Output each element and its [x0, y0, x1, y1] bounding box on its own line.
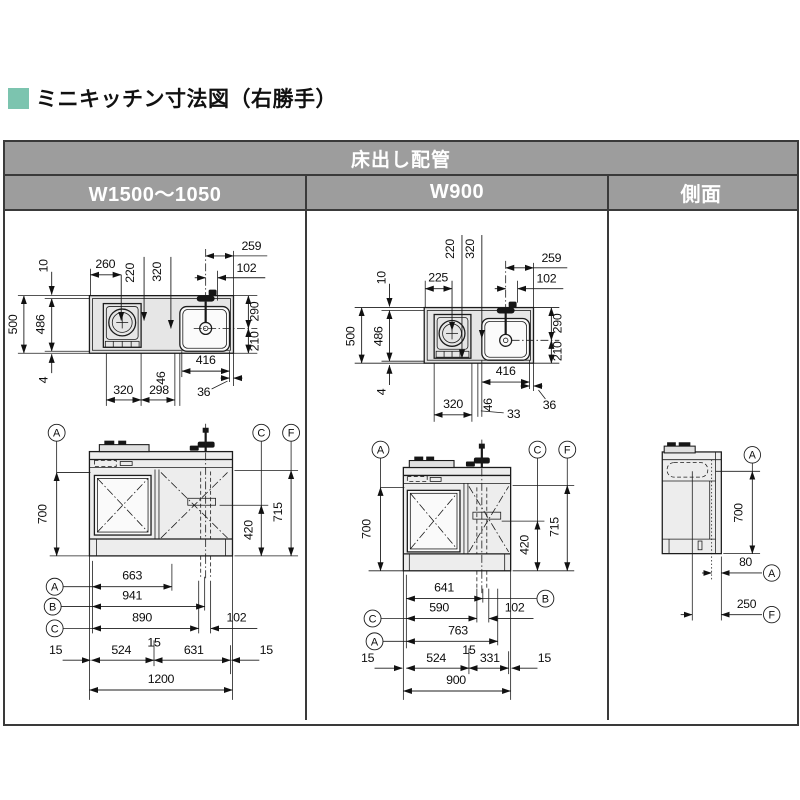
dim-label: 700 [732, 503, 746, 523]
dim-label: 715 [271, 502, 285, 522]
dim-label: 33 [507, 407, 521, 421]
dim-label: 36 [543, 398, 557, 412]
connection-letter: B [49, 602, 56, 614]
connection-letter: C [534, 445, 542, 457]
dim-label: 700 [360, 519, 374, 539]
dim-label: 102 [536, 272, 556, 286]
dim-label: 524 [111, 643, 131, 657]
dim-label: 15 [49, 643, 63, 657]
dim-label: 641 [434, 581, 454, 595]
dim-label: 420 [241, 520, 255, 540]
dim-label: 1200 [148, 672, 175, 686]
connection-letter: F [768, 610, 775, 622]
dim-label: 220 [443, 239, 457, 259]
dim-label: 320 [463, 239, 477, 259]
w900-faucet-icon [497, 308, 515, 314]
table-content-row: 259 102 260 220 320 [5, 211, 797, 720]
cell-w900: 259 102 225 220 320 [307, 211, 607, 720]
dim-label: 290 [247, 301, 261, 321]
dim-label: 36 [197, 385, 211, 399]
connection-letter: A [51, 582, 59, 594]
w1500-drawing: 259 102 260 220 320 [5, 211, 305, 720]
connection-letter: A [768, 568, 776, 580]
dim-label: 259 [241, 239, 261, 253]
dim-label: 250 [737, 597, 757, 611]
dim-label: 290 [550, 313, 564, 333]
dim-label: 4 [37, 376, 51, 383]
column-header-side: 側面 [609, 176, 793, 209]
w1500-plan-counter [89, 290, 233, 354]
connection-letter: C [257, 428, 265, 440]
w1500-elev-faucet-icon [198, 442, 215, 448]
dim-label: 524 [426, 651, 446, 665]
table-header-piping: 床出し配管 [5, 142, 797, 176]
w900-elevation-cabinet [403, 440, 510, 594]
dim-label: 220 [123, 262, 137, 282]
w900-drawing: 259 102 225 220 320 [307, 211, 607, 720]
dim-label: 15 [538, 651, 552, 665]
dim-label: 590 [429, 601, 449, 615]
dim-label: 15 [260, 643, 274, 657]
dim-label: 80 [739, 555, 752, 569]
dim-label: 320 [150, 261, 164, 281]
dim-label: 102 [505, 601, 525, 615]
side-view-cabinet [662, 442, 721, 620]
dim-label: 486 [34, 314, 48, 334]
dim-label: 416 [496, 364, 516, 378]
dim-label: 259 [541, 251, 561, 265]
dim-label: 416 [196, 353, 216, 367]
dim-label: 715 [547, 517, 561, 537]
dim-label: 320 [113, 383, 133, 397]
dim-label: 420 [518, 535, 532, 555]
dim-label: 486 [371, 326, 385, 346]
table-subheader-row: W1500～1050 W900 側面 [5, 176, 797, 211]
dim-label: 941 [122, 589, 142, 603]
page: ミニキッチン寸法図（右勝手） 床出し配管 W1500～1050 W900 側面 [0, 0, 800, 800]
w1500-faucet-icon [197, 296, 215, 302]
cell-w1500: 259 102 260 220 320 [5, 211, 305, 720]
dim-label: 631 [184, 643, 204, 657]
title-text: ミニキッチン寸法図（右勝手） [36, 83, 337, 113]
title-bullet-square [8, 88, 29, 109]
dim-label: 210 [550, 341, 564, 361]
connection-letter: B [542, 594, 549, 606]
connection-letter: A [371, 636, 379, 648]
dim-label: 210 [247, 331, 261, 351]
spec-table: 床出し配管 W1500～1050 W900 側面 [3, 140, 799, 726]
dim-label: 15 [462, 643, 476, 657]
connection-letter: A [377, 445, 385, 457]
dim-label: 890 [132, 610, 152, 624]
w900-plan-counter [424, 302, 533, 364]
dim-label: 225 [428, 271, 448, 285]
dim-label: 331 [480, 651, 500, 665]
dim-label: 15 [361, 651, 375, 665]
connection-letter: C [51, 623, 59, 635]
w1500-elevation-cabinet [89, 424, 232, 581]
connection-letter: F [564, 445, 571, 457]
dim-label: 663 [122, 569, 142, 583]
dim-label: 46 [481, 398, 495, 412]
dim-label: 102 [227, 610, 247, 624]
dim-label: 320 [443, 397, 463, 411]
dim-label: 500 [6, 314, 20, 334]
dim-label: 4 [374, 388, 388, 395]
dim-label: 10 [37, 259, 51, 273]
dim-label: 102 [236, 261, 256, 275]
column-header-w900: W900 [307, 176, 607, 209]
dim-label: 900 [446, 673, 466, 687]
dim-label: 260 [95, 257, 115, 271]
side-drawing: A 700 80 A 250 F [609, 211, 793, 720]
connection-letter: F [288, 428, 295, 440]
dim-label: 46 [154, 371, 168, 385]
connection-letter: A [749, 450, 757, 462]
dim-label: 500 [344, 326, 358, 346]
dim-label: 763 [448, 623, 468, 637]
dim-label: 15 [147, 635, 161, 649]
column-header-w1500: W1500～1050 [5, 176, 305, 209]
connection-letter: C [369, 613, 377, 625]
cell-side: A 700 80 A 250 F [609, 211, 793, 720]
dim-label: 700 [36, 504, 50, 524]
page-title: ミニキッチン寸法図（右勝手） [8, 83, 337, 113]
dim-label: 10 [374, 271, 388, 285]
connection-letter: A [53, 428, 61, 440]
